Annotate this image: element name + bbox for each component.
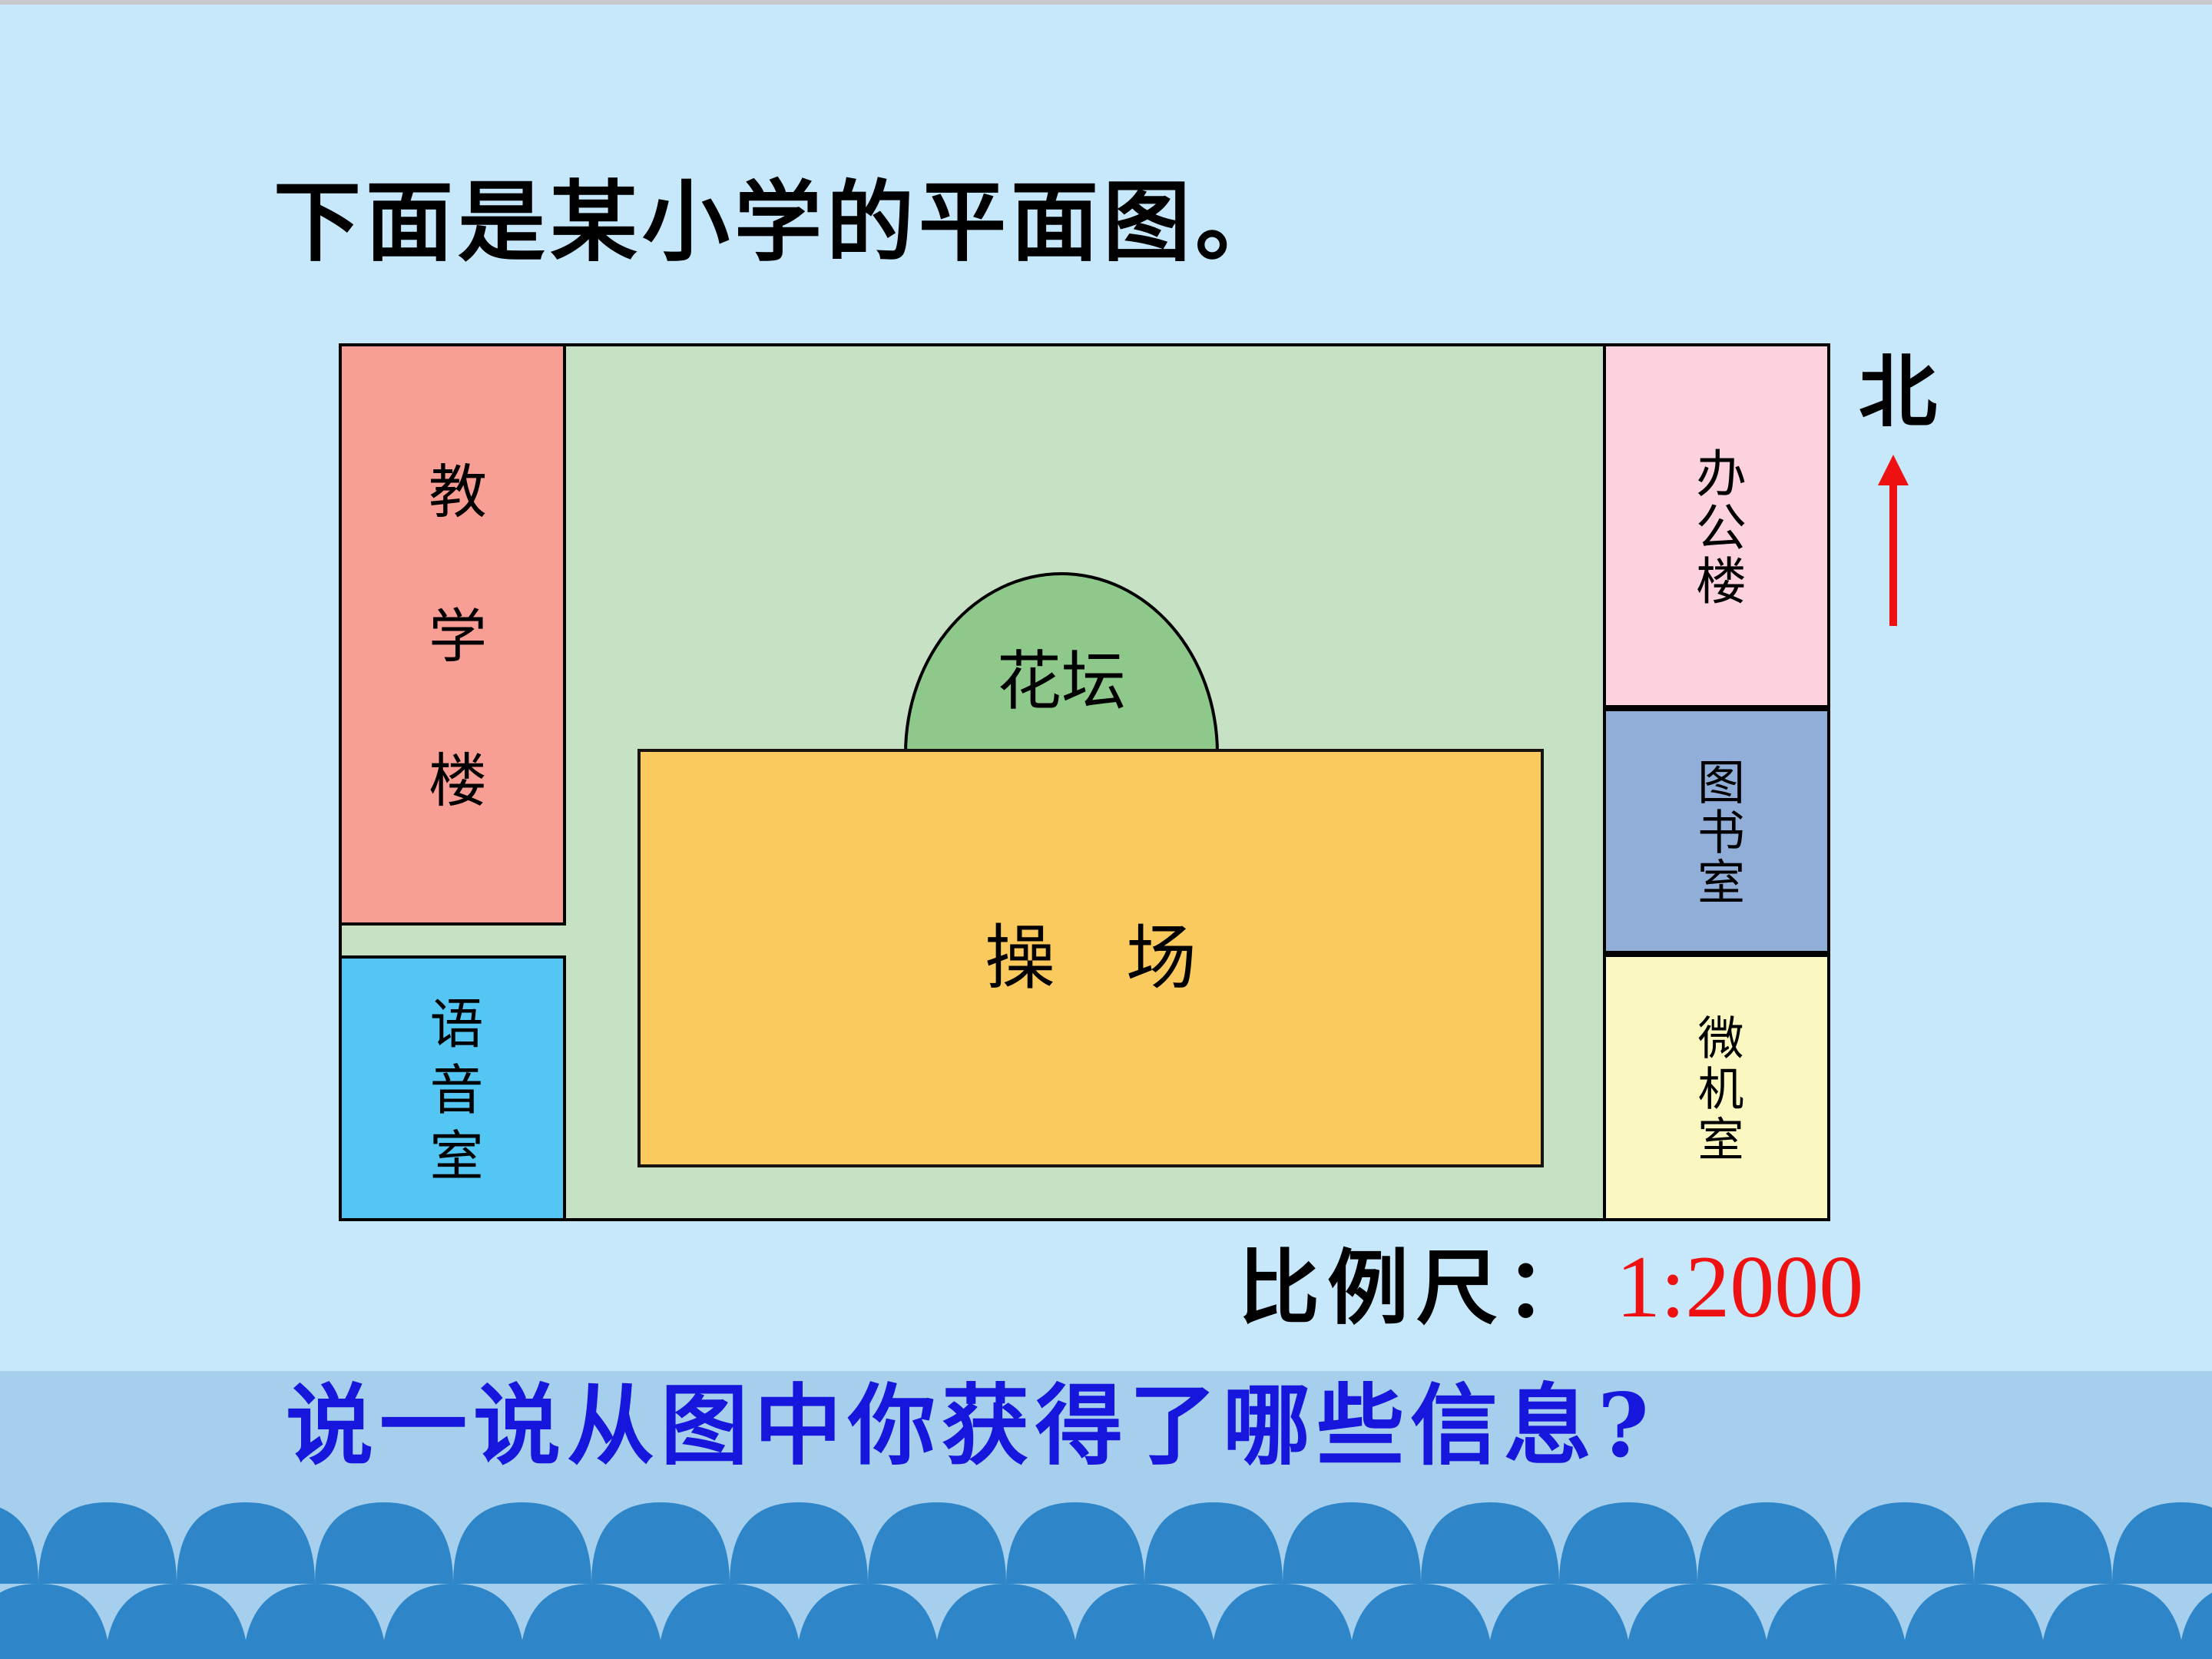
room-library: 图书室: [1603, 708, 1830, 954]
room-computer-label: 微机室: [1694, 1014, 1740, 1166]
playground-label: 操 场: [985, 923, 1197, 994]
room-computer-room: 微机室: [1603, 954, 1830, 1221]
north-arrow-icon: [1874, 452, 1912, 630]
slide-canvas: 下面是某小学的平面图。 教学楼 语音室 办公楼 图书室 微机室 花坛 操 场 北: [0, 0, 2212, 1659]
room-library-label: 图书室: [1693, 757, 1740, 907]
scale-label: 比例尺：: [1238, 1243, 1594, 1334]
scale-caption: 比例尺： 1:2000: [1238, 1241, 1863, 1335]
wave-decoration: [0, 1496, 2212, 1659]
wave-row-front: [0, 1584, 2212, 1659]
scale-value: 1:2000: [1616, 1241, 1863, 1335]
question-text: 说一说从图中你获得了哪些信息?: [286, 1382, 1655, 1469]
playground: 操 场: [637, 749, 1544, 1167]
room-office-label: 办公楼: [1691, 447, 1742, 608]
room-teaching-building: 教学楼: [339, 343, 566, 926]
flower-bed-label: 花坛: [997, 649, 1126, 714]
room-language-room: 语音室: [339, 955, 566, 1221]
room-language-label: 语音室: [426, 995, 479, 1194]
room-teaching-label: 教学楼: [423, 461, 482, 894]
wave-row-back: [0, 1502, 2212, 1584]
north-label: 北: [1848, 353, 1948, 432]
room-office-building: 办公楼: [1603, 343, 1830, 708]
